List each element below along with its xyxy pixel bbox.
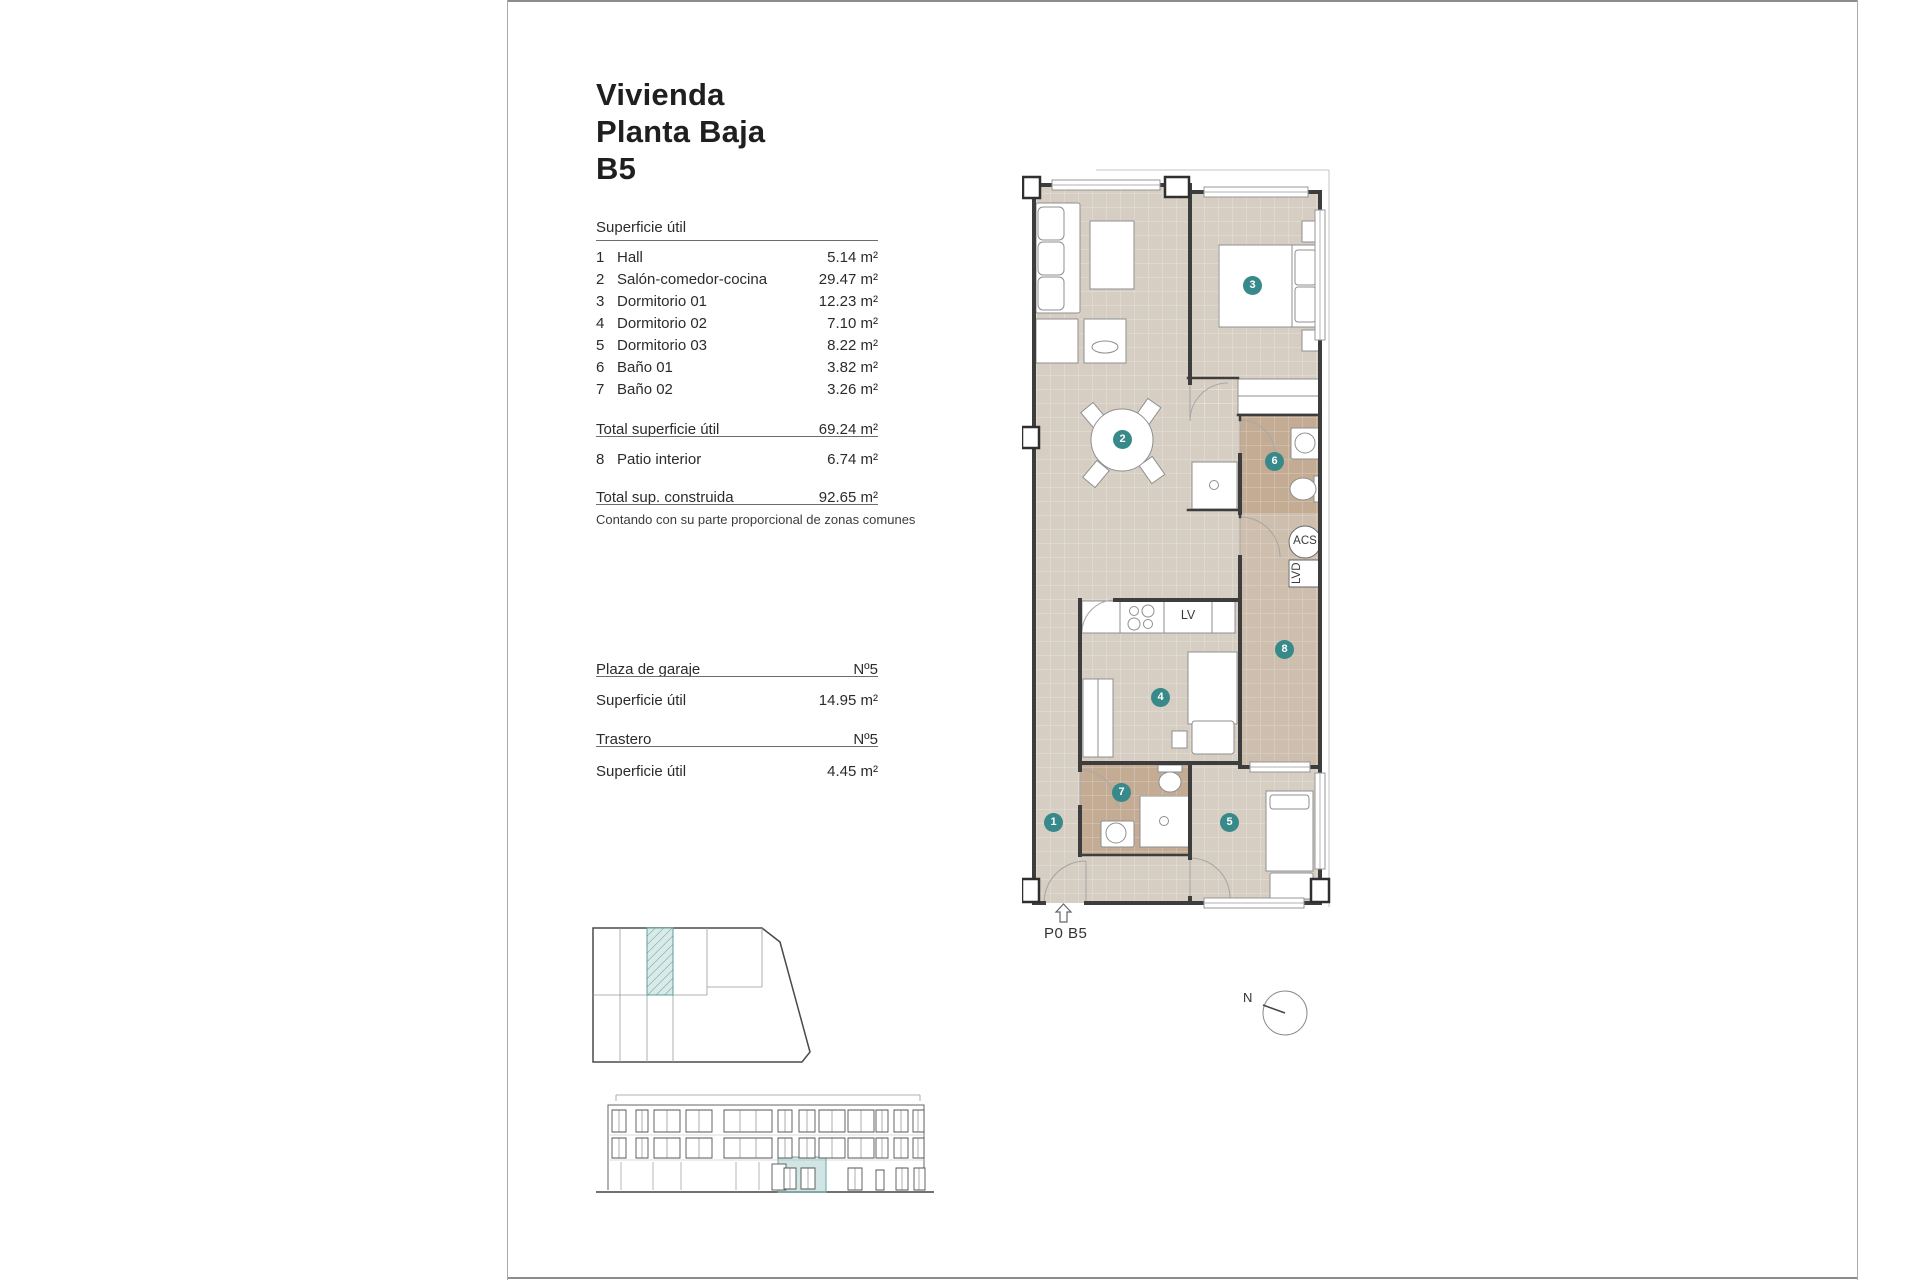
row-area: 12.23 m² xyxy=(819,291,878,313)
storage-label: Trastero xyxy=(596,729,651,751)
table-row: 5 Dormitorio 03 8.22 m² xyxy=(596,335,878,357)
table-row: 2 Salón-comedor-cocina 29.47 m² xyxy=(596,269,878,291)
room-badge-dorm2: 4 xyxy=(1151,688,1170,707)
row-num: 2 xyxy=(596,269,604,291)
washer-label: LVD xyxy=(1291,561,1319,586)
site-plan xyxy=(590,925,820,1075)
common-zones-note: Contando con su parte proporcional de zo… xyxy=(596,512,915,527)
plan-sheet: Vivienda Planta Baja B5 Superficie útil … xyxy=(0,0,1920,1280)
water-heater-label: ACS xyxy=(1287,535,1323,547)
garage-number: Nº5 xyxy=(853,659,878,681)
row-name: Patio interior xyxy=(617,449,701,471)
title-line-1: Vivienda xyxy=(596,76,765,113)
row-area: 6.74 m² xyxy=(827,449,878,471)
row-name: Baño 01 xyxy=(617,357,673,379)
table-row: 4 Dormitorio 02 7.10 m² xyxy=(596,313,878,335)
garage-area-row: Superficie útil 14.95 m² xyxy=(596,690,878,712)
total-value: 69.24 m² xyxy=(819,419,878,441)
rule-under-header xyxy=(596,240,878,241)
room-badge-bath1: 6 xyxy=(1265,452,1284,471)
row-num: 7 xyxy=(596,379,604,401)
row-num: 6 xyxy=(596,357,604,379)
room-badge-bath2: 7 xyxy=(1112,783,1131,802)
row-area: 5.14 m² xyxy=(827,247,878,269)
row-area: 8.22 m² xyxy=(827,335,878,357)
total-built-row: Total sup. construida 92.65 m² xyxy=(596,487,878,509)
dishwasher-label: LV xyxy=(1164,608,1212,622)
north-label: N xyxy=(1243,990,1252,1005)
rule-under-built xyxy=(596,504,878,505)
room-badge-hall: 1 xyxy=(1044,813,1063,832)
room-badge-salon: 2 xyxy=(1113,430,1132,449)
rule-under-garage xyxy=(596,676,878,677)
sheet-border-top xyxy=(507,0,1858,2)
floor-plan-drawing xyxy=(1022,165,1332,955)
garage-area-label: Superficie útil xyxy=(596,690,686,712)
row-area: 29.47 m² xyxy=(819,269,878,291)
garage-row: Plaza de garaje Nº5 xyxy=(596,659,878,681)
table-row: 3 Dormitorio 01 12.23 m² xyxy=(596,291,878,313)
table-row: 6 Baño 01 3.82 m² xyxy=(596,357,878,379)
row-area: 7.10 m² xyxy=(827,313,878,335)
built-value: 92.65 m² xyxy=(819,487,878,509)
rule-under-total xyxy=(596,436,878,437)
row-num: 1 xyxy=(596,247,604,269)
row-num: 5 xyxy=(596,335,604,357)
table-row: 7 Baño 02 3.26 m² xyxy=(596,379,878,401)
sheet-border-bottom xyxy=(507,1277,1858,1279)
title-line-3: B5 xyxy=(596,150,765,187)
surface-table-header: Superficie útil xyxy=(596,219,878,236)
row-name: Dormitorio 01 xyxy=(617,291,707,313)
room-badge-dorm3: 5 xyxy=(1220,813,1239,832)
row-name: Dormitorio 02 xyxy=(617,313,707,335)
garage-area-value: 14.95 m² xyxy=(819,690,878,712)
room-badge-patio: 8 xyxy=(1275,640,1294,659)
storage-row: Trastero Nº5 xyxy=(596,729,878,751)
rule-under-storage xyxy=(596,746,878,747)
storage-area-label: Superficie útil xyxy=(596,761,686,783)
storage-number: Nº5 xyxy=(853,729,878,751)
garage-label: Plaza de garaje xyxy=(596,659,700,681)
title-line-2: Planta Baja xyxy=(596,113,765,150)
page-title: Vivienda Planta Baja B5 xyxy=(596,76,765,187)
patio-row: 8 Patio interior 6.74 m² xyxy=(596,449,878,471)
total-label: Total superficie útil xyxy=(596,419,719,441)
row-name: Baño 02 xyxy=(617,379,673,401)
storage-area-row: Superficie útil 4.45 m² xyxy=(596,761,878,783)
row-area: 3.26 m² xyxy=(827,379,878,401)
plan-code: P0 B5 xyxy=(1044,925,1087,942)
room-badge-dorm1: 3 xyxy=(1243,276,1262,295)
row-num: 4 xyxy=(596,313,604,335)
building-elevation xyxy=(596,1092,936,1209)
row-name: Hall xyxy=(617,247,643,269)
row-num: 3 xyxy=(596,291,604,313)
row-area: 3.82 m² xyxy=(827,357,878,379)
total-useful-row: Total superficie útil 69.24 m² xyxy=(596,419,878,441)
storage-area-value: 4.45 m² xyxy=(827,761,878,783)
sheet-border-left xyxy=(507,0,508,1280)
entrance-arrow-icon xyxy=(1056,904,1071,922)
row-name: Salón-comedor-cocina xyxy=(617,269,767,291)
row-name: Dormitorio 03 xyxy=(617,335,707,357)
floor-plan: 1 2 3 4 5 6 7 8 LV ACS LVD P0 B5 xyxy=(1022,165,1332,955)
sheet-border-right xyxy=(1857,0,1858,1280)
table-row: 1 Hall 5.14 m² xyxy=(596,247,878,269)
north-compass-icon xyxy=(1235,975,1335,1055)
north-indicator: N xyxy=(1235,975,1335,1060)
row-num: 8 xyxy=(596,449,604,471)
built-label: Total sup. construida xyxy=(596,487,734,509)
